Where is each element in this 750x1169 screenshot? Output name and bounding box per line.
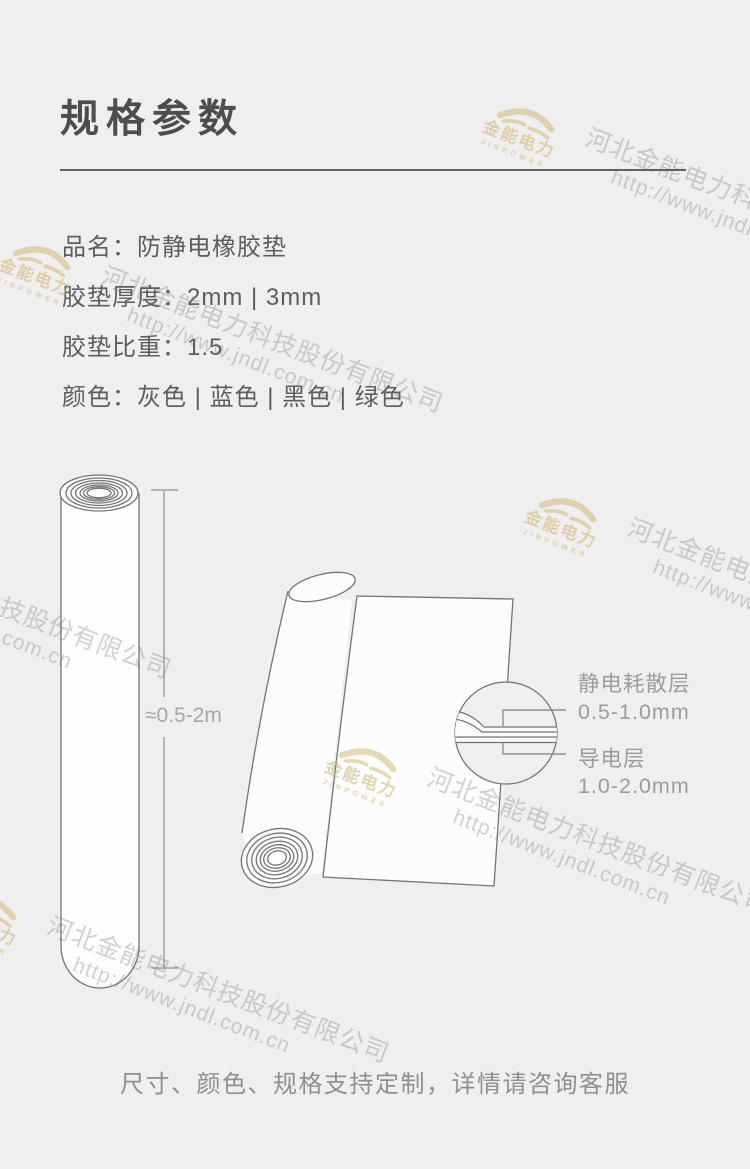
watermark-url: http://www.jndl.com.cn	[608, 165, 750, 304]
watermark-brand-cn: 金能电力	[480, 118, 557, 161]
jinpower-logo: 金能电力 JINPOWER	[476, 88, 568, 171]
product-illustration: ≈0.5-2m	[0, 460, 750, 1035]
product-spec-page: 规格参数 品名：防静电橡胶垫 胶垫厚度：2mm | 3mm 胶垫比重：1.5 颜…	[0, 0, 750, 1169]
watermark-url: http://www.jndl.com.cn	[124, 303, 437, 442]
spec-line-colors: 颜色：灰色 | 蓝色 | 黑色 | 绿色	[62, 377, 405, 412]
dissipative-layer-name: 静电耗散层	[578, 672, 691, 696]
height-dimension-label: ≈0.5-2m	[145, 704, 222, 727]
title-divider	[60, 169, 686, 171]
rolled-mat-cylinder	[60, 475, 139, 988]
page-title: 规格参数	[60, 88, 244, 144]
jinpower-roof-icon	[493, 90, 564, 141]
cross-section-magnifier	[454, 682, 566, 784]
spec-line-density: 胶垫比重：1.5	[62, 327, 223, 362]
customization-note: 尺寸、颜色、规格支持定制，详情请咨询客服	[0, 1064, 750, 1099]
spec-line-product-name: 品名：防静电橡胶垫	[62, 227, 287, 262]
conductive-layer-name: 导电层	[578, 747, 646, 771]
watermark-tile: 金能电力 JINPOWER 河北金能电力科技股份有限公司 http://www.…	[476, 88, 750, 310]
layer-labels: 静电耗散层 0.5-1.0mm 导电层 1.0-2.0mm	[578, 672, 691, 798]
dissipative-layer-thickness: 0.5-1.0mm	[578, 700, 690, 724]
conductive-layer-thickness: 1.0-2.0mm	[578, 774, 690, 798]
height-dimension-line	[151, 490, 178, 968]
spec-line-thickness: 胶垫厚度：2mm | 3mm	[62, 277, 322, 312]
watermark-brand-en: JINPOWER	[0, 277, 63, 308]
watermark-company: 河北金能电力科技股份有限公司	[581, 124, 750, 281]
watermark-brand-en: JINPOWER	[480, 139, 547, 170]
